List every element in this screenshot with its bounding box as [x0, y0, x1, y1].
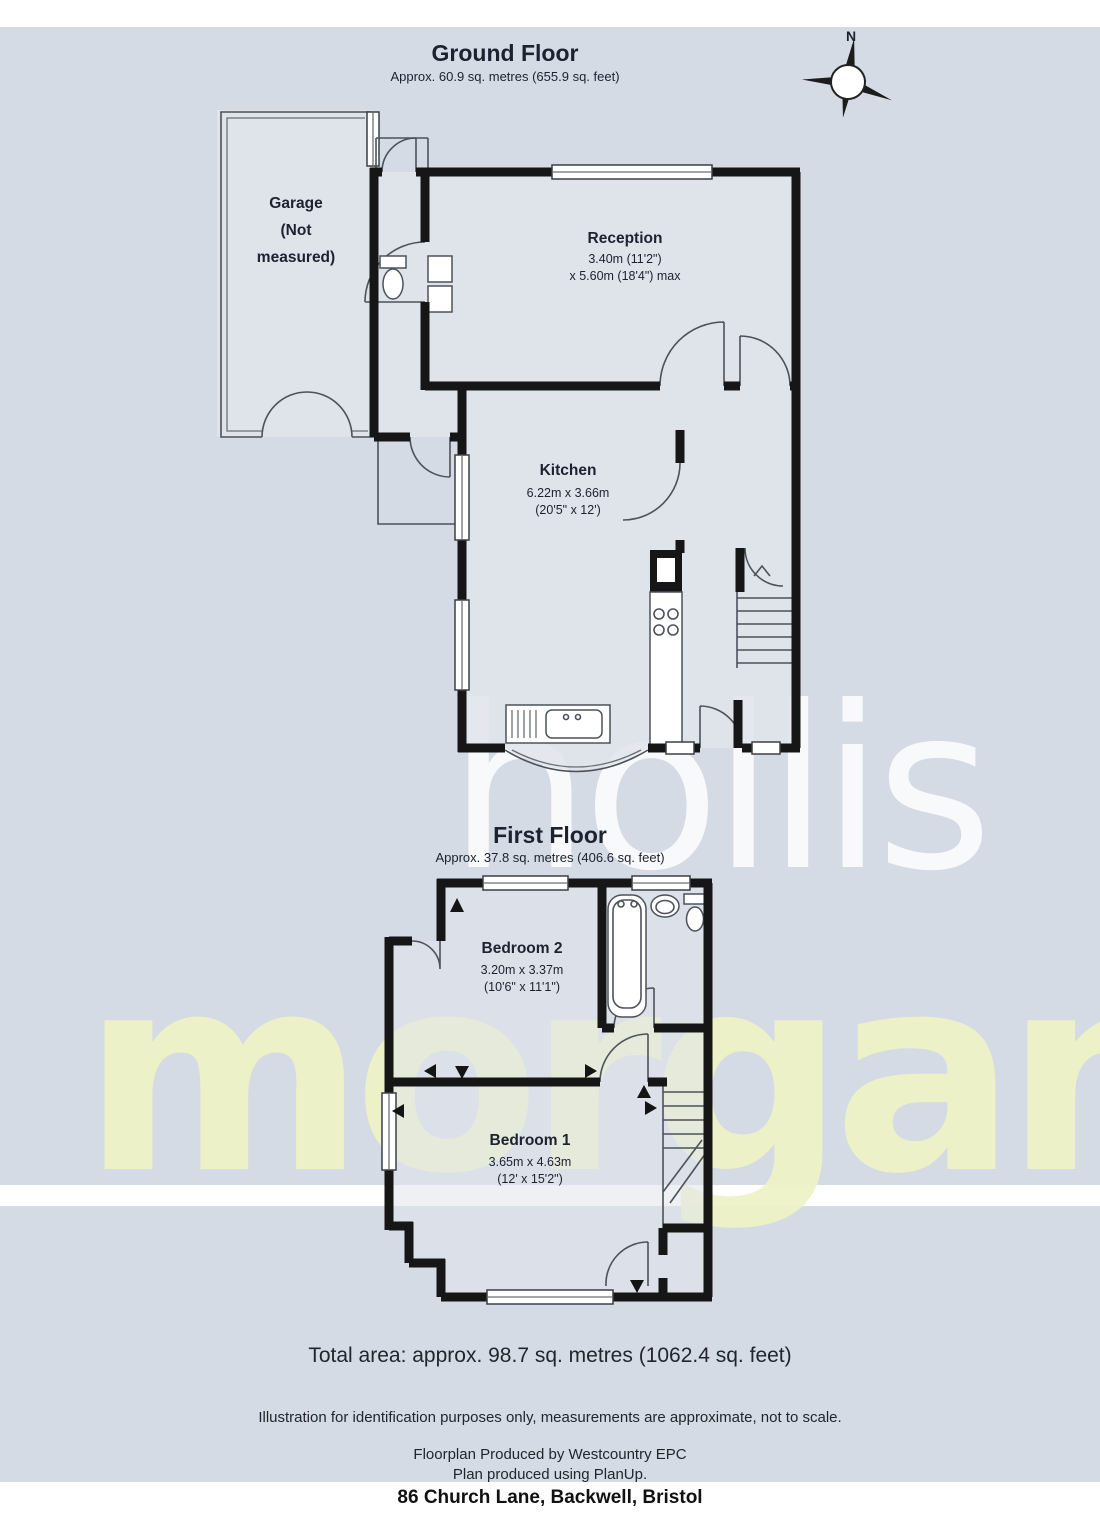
bedroom1-label: Bedroom 1 — [490, 1132, 571, 1150]
ground-floor-subtitle: Approx. 60.9 sq. metres (655.9 sq. feet) — [390, 69, 619, 84]
bedroom2-dim1: 3.20m x 3.37m — [481, 963, 564, 977]
garage-label: Garage (Not measured) — [257, 190, 335, 271]
bedroom1-dim2: (12' x 15'2") — [497, 1172, 563, 1186]
kitchen-dim1: 6.22m x 3.66m — [527, 486, 610, 500]
kitchen-dim2: (20'5" x 12') — [535, 503, 601, 517]
floorplan-drawing — [0, 0, 1100, 1513]
property-address: 86 Church Lane, Backwell, Bristol — [397, 1487, 702, 1509]
produced-by-text: Floorplan Produced by Westcountry EPC — [413, 1446, 686, 1463]
produced-with-text: Plan produced using PlanUp. — [453, 1466, 647, 1483]
garage-label-line3: measured) — [257, 244, 335, 271]
compass-north-label: N — [846, 28, 856, 44]
disclaimer-text: Illustration for identification purposes… — [258, 1409, 841, 1426]
bedroom1-dim1: 3.65m x 4.63m — [489, 1155, 572, 1169]
first-floor-title: First Floor — [493, 822, 607, 849]
first-floor-subtitle: Approx. 37.8 sq. metres (406.6 sq. feet) — [435, 850, 664, 865]
bedroom2-dim2: (10'6" x 11'1") — [484, 980, 560, 994]
reception-dim2: x 5.60m (18'4") max — [569, 269, 680, 283]
garage-label-line1: Garage — [257, 190, 335, 217]
reception-label: Reception — [588, 230, 663, 248]
compass-icon — [797, 32, 899, 124]
total-area-text: Total area: approx. 98.7 sq. metres (106… — [308, 1344, 791, 1368]
floorplan-page: hollis morgan — [0, 0, 1100, 1513]
reception-dim1: 3.40m (11'2") — [588, 252, 661, 266]
garage-label-line2: (Not — [257, 217, 335, 244]
ground-floor-title: Ground Floor — [432, 40, 579, 67]
bedroom2-label: Bedroom 2 — [482, 940, 563, 958]
kitchen-label: Kitchen — [540, 462, 597, 480]
